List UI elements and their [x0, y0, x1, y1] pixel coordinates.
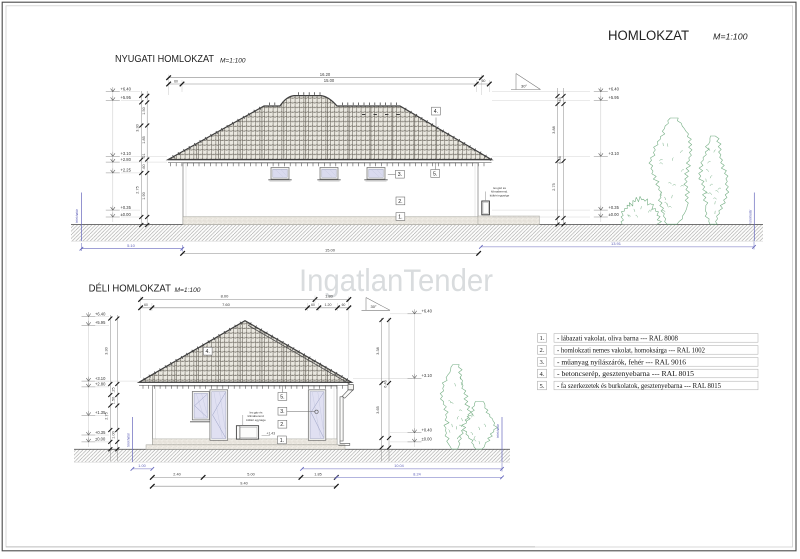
- svg-text:- betoncserép, gesztenyebarna: - betoncserép, gesztenyebarna --- RAL 80…: [557, 370, 694, 378]
- svg-text:5.: 5.: [280, 394, 284, 400]
- svg-text:±0.00: ±0.00: [609, 212, 620, 217]
- svg-text:8.24: 8.24: [413, 473, 420, 477]
- svg-text:kültéri egysége: kültéri egysége: [246, 418, 266, 422]
- svg-text:8.00: 8.00: [221, 294, 230, 299]
- svg-text:60: 60: [174, 79, 178, 83]
- svg-text:+0.35: +0.35: [121, 205, 132, 210]
- svg-text:5.00: 5.00: [247, 473, 254, 477]
- svg-text:3.: 3.: [280, 409, 284, 415]
- svg-text:- homlokzati nemes vakolat, ho: - homlokzati nemes vakolat, homoksárga -…: [557, 346, 705, 354]
- svg-text:60: 60: [482, 79, 486, 83]
- svg-text:+2.80: +2.80: [95, 382, 106, 387]
- svg-text:30°: 30°: [370, 304, 376, 309]
- svg-text:+6.40: +6.40: [609, 86, 620, 91]
- svg-text:1.85: 1.85: [142, 136, 146, 143]
- svg-text:telekhatár: telekhatár: [126, 432, 130, 447]
- svg-text:5.: 5.: [433, 171, 437, 177]
- svg-text:.21: .21: [142, 153, 146, 158]
- svg-text:1.90: 1.90: [142, 192, 146, 199]
- svg-text:+3.10: +3.10: [609, 151, 620, 156]
- svg-text:60: 60: [311, 303, 315, 307]
- svg-text:5.: 5.: [540, 383, 545, 390]
- svg-text:2.75: 2.75: [105, 412, 109, 419]
- svg-text:2.: 2.: [540, 347, 545, 354]
- svg-text:3.65: 3.65: [376, 406, 380, 413]
- svg-text:2.75: 2.75: [552, 183, 556, 190]
- svg-text:60: 60: [144, 303, 148, 307]
- svg-text:kültéri egysége: kültéri egysége: [490, 193, 510, 197]
- svg-text:13.91: 13.91: [611, 241, 622, 246]
- svg-text:3.: 3.: [398, 172, 402, 178]
- svg-text:+0.35: +0.35: [95, 430, 106, 435]
- svg-text:telekhatár: telekhatár: [496, 423, 500, 438]
- svg-text:1.: 1.: [280, 438, 284, 444]
- svg-text:+6.40: +6.40: [422, 309, 433, 314]
- svg-text:+3.10: +3.10: [121, 151, 132, 156]
- svg-text:- műanyag nyílászárók, fehér: - műanyag nyílászárók, fehér --- RAL 901…: [557, 358, 686, 366]
- svg-text:+5.95: +5.95: [609, 95, 620, 100]
- svg-text:±0.00: ±0.00: [422, 437, 433, 442]
- svg-text:1.: 1.: [398, 214, 402, 220]
- svg-text:1.00: 1.00: [112, 431, 116, 438]
- svg-text:2.40: 2.40: [173, 473, 180, 477]
- svg-text:3.30: 3.30: [105, 347, 109, 354]
- svg-text:3.30: 3.30: [136, 124, 140, 131]
- svg-text:+0.40: +0.40: [422, 428, 433, 433]
- svg-text:1.00: 1.00: [138, 464, 145, 468]
- svg-text:M=1:100: M=1:100: [713, 32, 748, 42]
- svg-text:+0.35: +0.35: [609, 205, 620, 210]
- svg-text:NYUGATI HOMLOKZAT: NYUGATI HOMLOKZAT: [115, 54, 214, 65]
- svg-text:3.38: 3.38: [376, 347, 380, 354]
- svg-text:30°: 30°: [521, 83, 527, 88]
- svg-text:15.00: 15.00: [325, 248, 336, 253]
- svg-text:M=1:100: M=1:100: [175, 287, 201, 294]
- svg-text:+3.10: +3.10: [422, 373, 433, 378]
- svg-text:+1.43: +1.43: [267, 431, 276, 435]
- svg-text:+6.40: +6.40: [121, 86, 132, 91]
- svg-text:1.85: 1.85: [314, 473, 321, 477]
- svg-text:telekhatár: telekhatár: [748, 209, 752, 224]
- svg-text:.25: .25: [112, 387, 116, 392]
- svg-text:5.10: 5.10: [127, 243, 136, 248]
- svg-text:7.60: 7.60: [222, 302, 231, 307]
- svg-text:60: 60: [342, 303, 346, 307]
- svg-text:+2.80: +2.80: [121, 157, 132, 162]
- svg-text:- fa szerkezetek és burkolatok: - fa szerkezetek és burkolatok, geszteny…: [557, 382, 721, 390]
- svg-text:6.46: 6.46: [558, 156, 562, 163]
- svg-text:2.75: 2.75: [136, 186, 140, 193]
- svg-text:4.: 4.: [206, 349, 210, 355]
- svg-text:2.: 2.: [280, 422, 284, 428]
- svg-text:DÉLI HOMLOKZAT: DÉLI HOMLOKZAT: [89, 282, 171, 295]
- svg-text:1.80: 1.80: [325, 294, 334, 299]
- svg-text:+6.40: +6.40: [95, 311, 106, 316]
- svg-text:telekhatár: telekhatár: [75, 208, 79, 223]
- svg-text:IngatlanTender: IngatlanTender: [299, 262, 493, 298]
- svg-text:1.: 1.: [540, 335, 545, 342]
- svg-text:16.20: 16.20: [320, 72, 331, 77]
- svg-text:M=1:100: M=1:100: [220, 58, 246, 65]
- svg-text:10.04: 10.04: [394, 464, 404, 468]
- svg-text:4.: 4.: [434, 109, 438, 115]
- svg-text:1.50: 1.50: [142, 107, 146, 114]
- svg-text:3.: 3.: [540, 359, 545, 366]
- svg-text:4.: 4.: [540, 371, 545, 378]
- svg-text:HOMLOKZAT: HOMLOKZAT: [608, 28, 689, 43]
- svg-text:+5.95: +5.95: [121, 95, 132, 100]
- svg-text:.60: .60: [142, 164, 146, 169]
- svg-text:6.46: 6.46: [383, 380, 387, 387]
- svg-text:9.40: 9.40: [240, 482, 247, 486]
- svg-text:+5.95: +5.95: [95, 320, 106, 325]
- svg-text:+3.10: +3.10: [95, 376, 106, 381]
- svg-text:1.20: 1.20: [325, 303, 332, 307]
- svg-text:+2.25: +2.25: [121, 168, 132, 173]
- svg-text:±0.00: ±0.00: [121, 212, 132, 217]
- svg-text:.45: .45: [558, 97, 562, 102]
- svg-text:3.88: 3.88: [552, 126, 556, 133]
- svg-text:1.50: 1.50: [112, 397, 116, 404]
- svg-text:±0.00: ±0.00: [95, 437, 106, 442]
- svg-text:- lábazati vakolat, oliva barn: - lábazati vakolat, oliva barna --- RAL …: [557, 334, 678, 342]
- svg-text:15.00: 15.00: [324, 78, 335, 83]
- svg-text:2.: 2.: [398, 199, 402, 205]
